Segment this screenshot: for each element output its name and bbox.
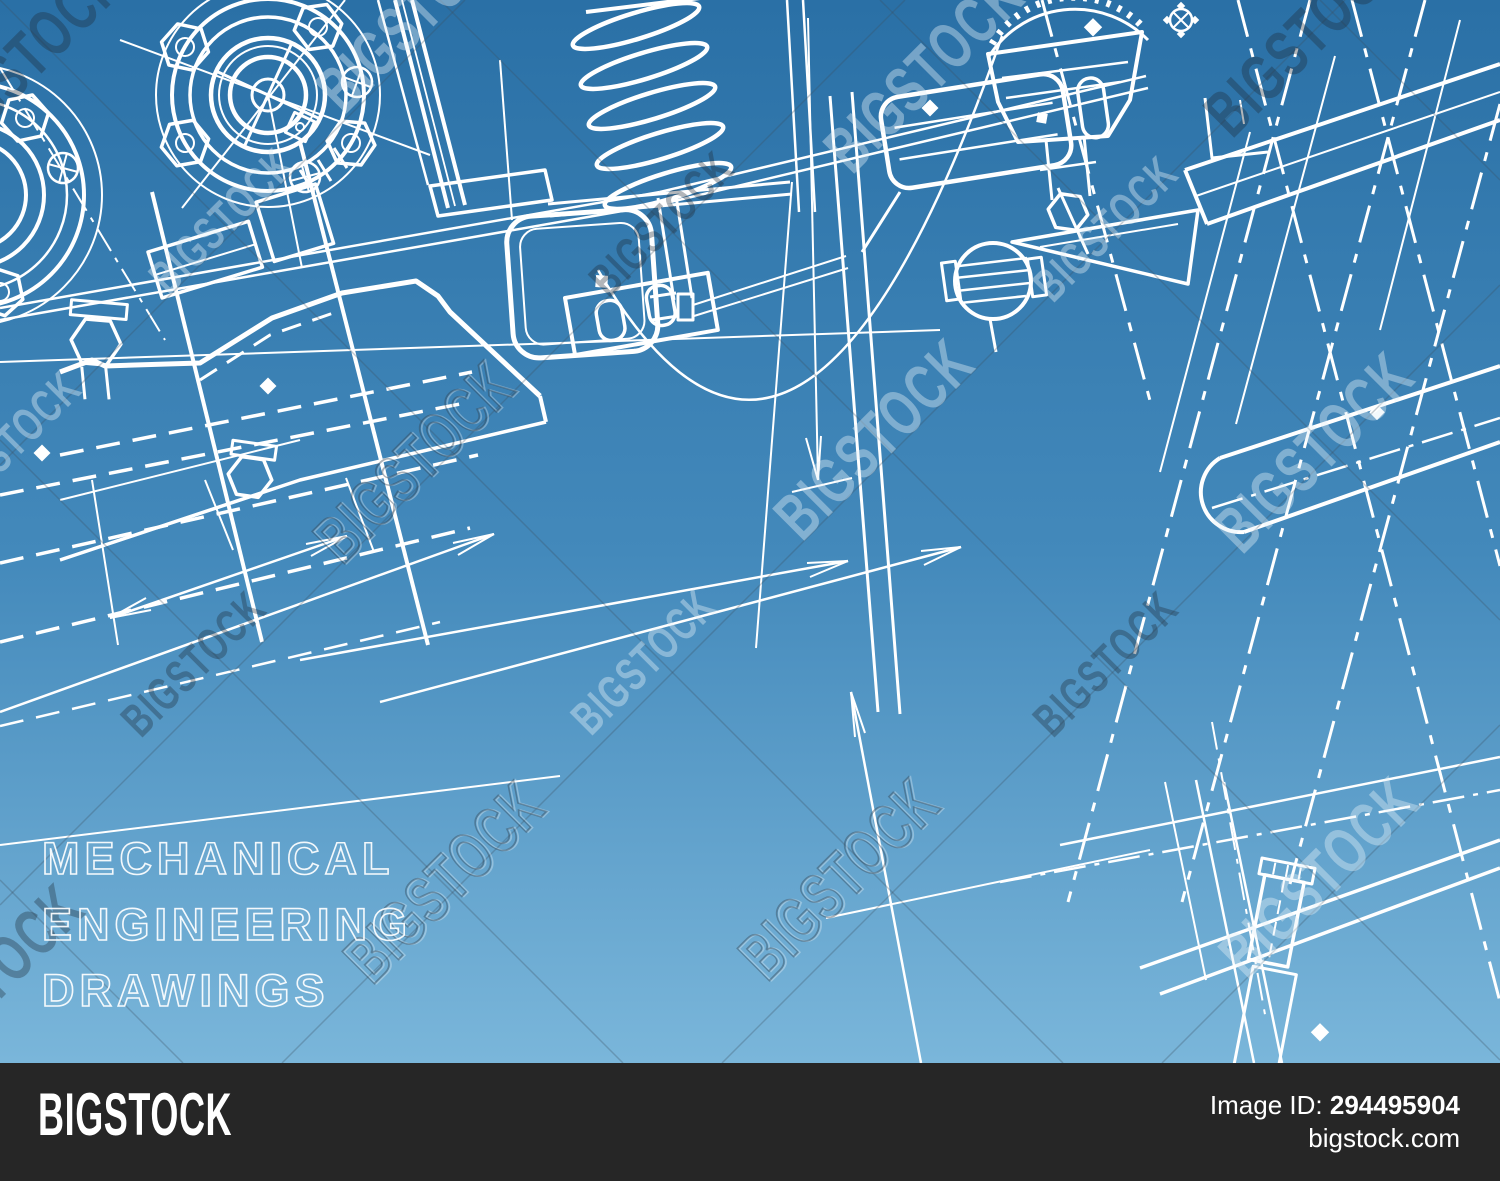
image-id-label: Image ID: bbox=[1210, 1090, 1323, 1120]
image-id-line: Image ID: 294495904 bbox=[1210, 1089, 1460, 1122]
watermark-text: BIGSTOCK bbox=[0, 360, 91, 526]
site-url: bigstock.com bbox=[1210, 1122, 1460, 1155]
watermark-text: BIGSTOCK bbox=[1022, 145, 1188, 311]
watermark-text: BIGSTOCK bbox=[0, 0, 138, 173]
bigstock-footer-bar: BIGSTOCK Image ID: 294495904 bigstock.co… bbox=[0, 1063, 1500, 1181]
image-id-value: 294495904 bbox=[1330, 1090, 1460, 1120]
watermark-text: BIGSTOCK bbox=[810, 0, 1038, 186]
headline-line3: DRAWINGS bbox=[42, 958, 412, 1024]
compass-mark-icon bbox=[1163, 2, 1199, 38]
stock-image-preview: BIGSTOCK BIGSTOCK BIGSTOCK BIGSTOCK BIGS… bbox=[0, 0, 1500, 1181]
watermark-text-embossed: BIGSTOCK BIGSTOCK bbox=[725, 764, 955, 994]
blueprint-background: BIGSTOCK BIGSTOCK BIGSTOCK BIGSTOCK BIGS… bbox=[0, 0, 1500, 1063]
watermark-text: BIGSTOCK bbox=[1190, 0, 1418, 150]
headline-line1: MECHANICAL bbox=[42, 826, 412, 892]
svg-text:BIGSTOCK: BIGSTOCK bbox=[725, 765, 953, 993]
watermark-text: BIGSTOCK bbox=[1022, 580, 1188, 746]
bigstock-logo: BIGSTOCK bbox=[38, 1089, 232, 1141]
headline-line2: ENGINEERING bbox=[42, 892, 412, 958]
gear-housing-hump-drawing bbox=[0, 281, 546, 726]
watermark-text: BIGSTOCK bbox=[560, 578, 726, 744]
headline-text: MECHANICAL ENGINEERING DRAWINGS bbox=[42, 826, 412, 1024]
image-info: Image ID: 294495904 bigstock.com bbox=[1210, 1089, 1460, 1155]
